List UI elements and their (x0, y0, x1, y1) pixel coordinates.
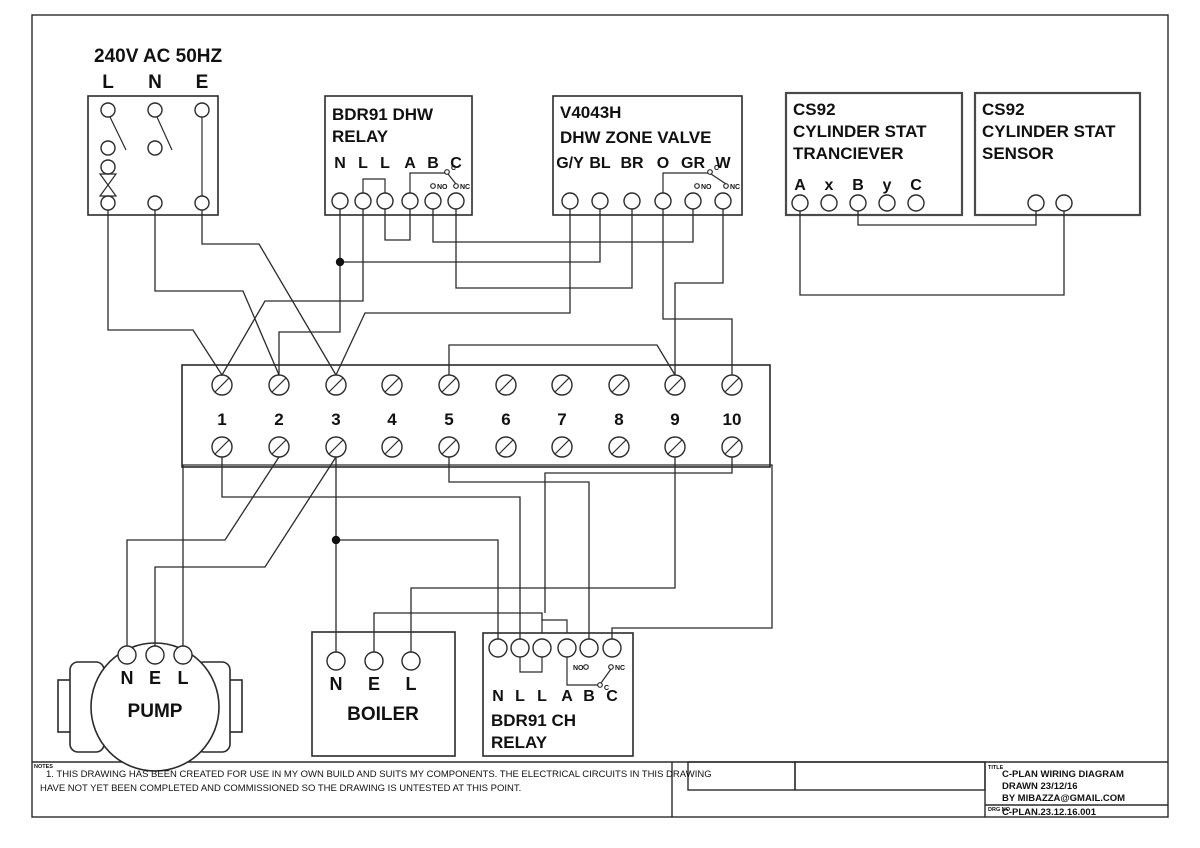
boiler-label: BOILER (347, 704, 419, 725)
dhw-relay-label-B: B (427, 155, 439, 172)
cs92-sensor-terminal-left (1028, 195, 1044, 211)
zone-valve-title-1: V4043H (560, 103, 621, 122)
terminal-number-9: 9 (670, 410, 679, 429)
notes-section: NOTES 1. THIS DRAWING HAS BEEN CREATED F… (34, 764, 712, 794)
ch-relay-label-A: A (561, 688, 573, 705)
wire-strip-9-bottom-to-boiler-L (411, 457, 675, 652)
dhw-relay-label-L1: L (358, 155, 368, 172)
pump-terminal-N (118, 646, 136, 664)
wire-valve-O-to-strip-10-top (663, 209, 732, 375)
zone-valve-label-BR: BR (620, 155, 644, 172)
pump-label-N: N (121, 668, 134, 688)
wire-strip-2-bottom-to-pump-N (127, 457, 279, 646)
pump-terminal-E (146, 646, 164, 664)
wire-mains-L-to-strip-1-top (108, 210, 222, 375)
terminal-number-6: 6 (501, 410, 510, 429)
notes-line-1: 1. THIS DRAWING HAS BEEN CREATED FOR USE… (46, 769, 712, 780)
ch-relay-label-L1: L (515, 688, 525, 705)
ch-relay-terminal-L1 (511, 639, 529, 657)
dhw-relay-terminal-N (332, 193, 348, 209)
wire-valve-W-to-strip-9-top (675, 209, 723, 375)
ch-relay-label-C: C (606, 688, 618, 705)
terminal-number-3: 3 (331, 410, 340, 429)
cs92-terminal-y (879, 195, 895, 211)
zone-valve-switch-no-label: NO (701, 184, 712, 191)
ch-relay-external-jumper (542, 620, 567, 633)
terminal-strip: 12345678910 (182, 365, 770, 467)
mains-E-terminal-top (195, 103, 209, 117)
pump-terminal-L (174, 646, 192, 664)
zone-valve-switch-c-label: C (714, 165, 719, 172)
boiler: N E L BOILER (312, 632, 455, 756)
zone-valve-terminal-O (655, 193, 671, 209)
cs92-terminal-B (850, 195, 866, 211)
dhw-relay-label-A: A (404, 155, 416, 172)
wire-strip-3-bottom-to-pump-E (155, 457, 336, 646)
zone-valve-terminal-BL (592, 193, 608, 209)
mains-L-terminal-top (101, 103, 115, 117)
boiler-terminal-L (402, 652, 420, 670)
mains-N-terminal-top (148, 103, 162, 117)
ch-relay-label-B: B (583, 688, 595, 705)
mains-title: 240V AC 50HZ (94, 46, 223, 67)
cs92-sensor-title-2: CYLINDER STAT (982, 122, 1116, 141)
boiler-label-L: L (406, 674, 417, 694)
mains-terminal-label-L: L (102, 72, 114, 93)
cs92-sensor-terminal-right (1056, 195, 1072, 211)
zone-valve-title-2: DHW ZONE VALVE (560, 128, 711, 147)
zone-valve-terminal-GY (562, 193, 578, 209)
terminal-number-5: 5 (444, 410, 453, 429)
pump-label-L: L (178, 668, 189, 688)
ch-relay: C NO NC N L L A B C BDR91 CH RELAY (483, 620, 633, 756)
dhw-relay-label-N: N (334, 155, 346, 172)
boiler-terminal-E (365, 652, 383, 670)
cs92-terminal-x (821, 195, 837, 211)
dhw-relay-terminal-B (425, 193, 441, 209)
terminal-number-4: 4 (387, 410, 397, 429)
boiler-label-E: E (368, 674, 380, 694)
zone-valve-label-BL: BL (589, 155, 611, 172)
cs92-transceiver-title-3: TRANCIEVER (793, 144, 904, 163)
terminal-number-7: 7 (557, 410, 566, 429)
drawing-date: DRAWN 23/12/16 (1002, 781, 1078, 792)
zone-valve-terminal-BR (624, 193, 640, 209)
wire-dhw-relay-C-to-valve-BR (456, 209, 632, 288)
boiler-terminal-N (327, 652, 345, 670)
cs92-label-C: C (910, 177, 922, 194)
cs92-sensor-title-1: CS92 (982, 100, 1025, 119)
ch-relay-switch-nc-label: NC (615, 665, 625, 672)
cs92-label-x: x (825, 177, 834, 194)
zone-valve-label-O: O (657, 155, 669, 172)
pump: N E L PUMP (58, 643, 242, 771)
ch-relay-label-N: N (492, 688, 504, 705)
boiler-label-N: N (330, 674, 343, 694)
dhw-relay-terminal-C (448, 193, 464, 209)
cs92-sensor-title-3: SENSOR (982, 144, 1054, 163)
zone-valve-terminal-GR (685, 193, 701, 209)
wiring-diagram: 240V AC 50HZ L N E BDR91 DHW RELAY N L L… (0, 0, 1200, 848)
dhw-relay-title-1: BDR91 DHW (332, 105, 434, 124)
mains-N-terminal-bottom (148, 196, 162, 210)
dhw-zone-valve: V4043H DHW ZONE VALVE G/Y BL BR O GR W C… (553, 96, 742, 215)
cs92-label-y: y (883, 177, 892, 194)
drawing-author: BY MIBAZZA@GMAIL.COM (1002, 793, 1125, 804)
dhw-relay: BDR91 DHW RELAY N L L A B C C NO NC (325, 96, 472, 215)
title-block: TITLE C-PLAN WIRING DIAGRAM DRAWN 23/12/… (988, 765, 1125, 818)
cs92-transceiver-title-2: CYLINDER STAT (793, 122, 927, 141)
ch-relay-terminal-N (489, 639, 507, 657)
terminal-number-10: 10 (723, 410, 742, 429)
cs92-label-B: B (852, 177, 864, 194)
mains-terminal-label-N: N (148, 72, 162, 93)
zone-valve-switch-nc-label: NC (730, 184, 740, 191)
dhw-relay-terminal-A (402, 193, 418, 209)
ch-relay-switch-no-label: NO (573, 665, 584, 672)
wire-pump-L-to-ch-relay-C (183, 465, 772, 646)
dhw-relay-title-2: RELAY (332, 127, 389, 146)
wire-cs92-A-to-sensor-right (800, 211, 1064, 295)
ch-relay-label-L2: L (537, 688, 547, 705)
wire-dhw-relay-N-to-strip-2-top (279, 209, 340, 375)
zone-valve-label-GR: GR (681, 155, 705, 172)
drawing-title: C-PLAN WIRING DIAGRAM (1002, 769, 1124, 780)
cs92-transceiver: CS92 CYLINDER STAT TRANCIEVER A x B y C (786, 93, 962, 215)
terminal-number-2: 2 (274, 410, 283, 429)
dhw-relay-switch-no-label: NO (437, 184, 448, 191)
zone-valve-label-GY: G/Y (556, 155, 584, 172)
cs92-terminal-C (908, 195, 924, 211)
terminal-number-1: 1 (217, 410, 226, 429)
dhw-relay-switch-nc-label: NC (460, 184, 470, 191)
mains-E-terminal-bottom (195, 196, 209, 210)
dhw-relay-terminal-L1 (355, 193, 371, 209)
wire-strip-5-bottom-to-ch-relay-B (449, 457, 589, 639)
wire-strip-10-bottom-to-ch-relay-jumper (545, 457, 732, 613)
ch-relay-terminal-B (580, 639, 598, 657)
mains-supply: 240V AC 50HZ L N E (88, 46, 223, 215)
cs92-transceiver-title-1: CS92 (793, 100, 836, 119)
ch-relay-title-2: RELAY (491, 733, 548, 752)
dhw-relay-switch-c-label: C (451, 165, 456, 172)
wire-valve-GY-to-strip-3-top (336, 209, 570, 375)
mains-terminal-label-E: E (196, 72, 209, 93)
wire-mains-N-to-strip-2-top (155, 210, 279, 375)
wire-strip-1-bottom-to-ch-relay-L1 (222, 457, 520, 639)
pump-label-E: E (149, 668, 161, 688)
wire-neutral-junction-to-ch-relay-N (336, 540, 498, 639)
ch-relay-terminal-C (603, 639, 621, 657)
notes-line-2: HAVE NOT YET BEEN COMPLETED AND COMMISSI… (40, 783, 521, 794)
junction-dot (336, 258, 344, 266)
zone-valve-terminal-W (715, 193, 731, 209)
ch-relay-terminal-L2 (533, 639, 551, 657)
revision-box-2 (795, 762, 985, 790)
drawing-number: C-PLAN.23.12.16.001 (1002, 807, 1097, 818)
cs92-label-A: A (794, 177, 806, 194)
terminal-number-8: 8 (614, 410, 623, 429)
wire-dhw-relay-N-junction-to-valve-BL (340, 209, 600, 262)
boiler-box (312, 632, 455, 756)
cs92-terminal-A (792, 195, 808, 211)
dhw-relay-terminal-L2 (377, 193, 393, 209)
drawing-page: 240V AC 50HZ L N E BDR91 DHW RELAY N L L… (0, 0, 1200, 848)
junction-dot (332, 536, 340, 544)
dhw-relay-label-L2: L (380, 155, 390, 172)
pump-label: PUMP (128, 701, 183, 722)
ch-relay-terminal-A (558, 639, 576, 657)
cs92-sensor: CS92 CYLINDER STAT SENSOR (975, 93, 1140, 215)
ch-relay-title-1: BDR91 CH (491, 711, 576, 730)
mains-L-terminal-bottom (101, 196, 115, 210)
